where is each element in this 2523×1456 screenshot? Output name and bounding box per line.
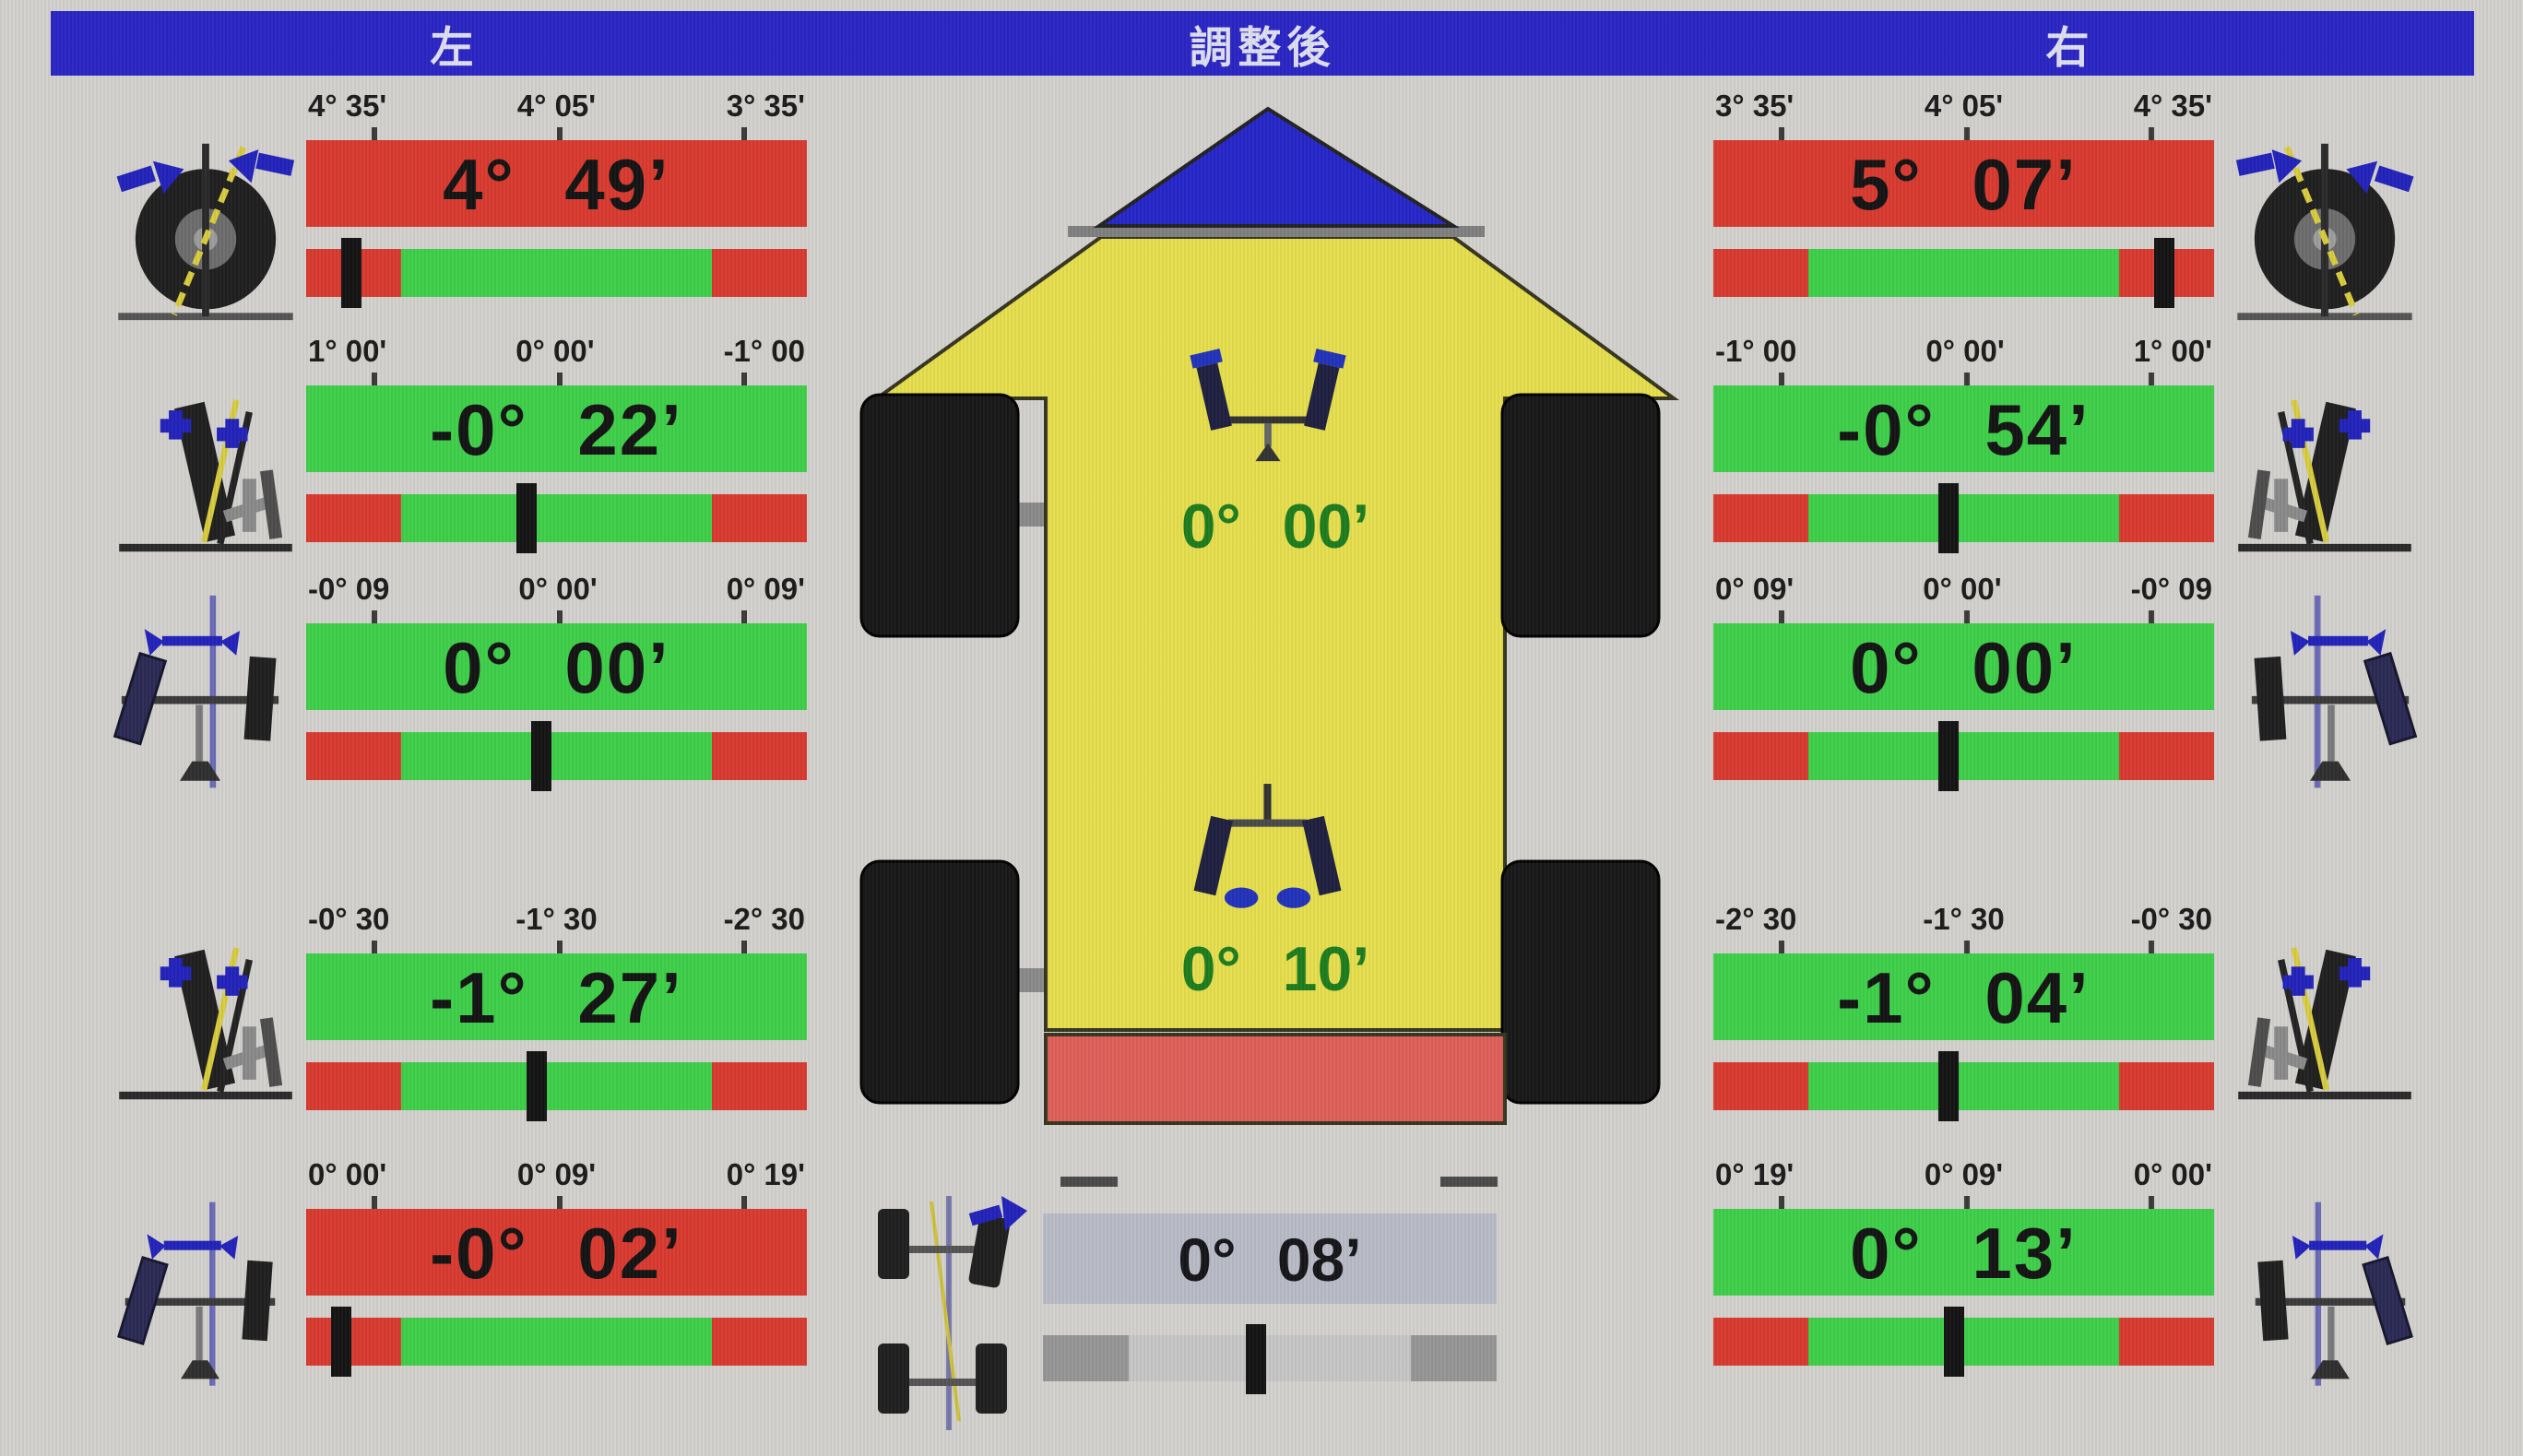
gauge-front-toe-left: -0° 090° 00'0° 09' 0° 00’ <box>306 572 807 780</box>
tolerance-scale <box>1713 1318 2214 1366</box>
gauge-rear-camber-right: -2° 30-1° 30-0° 30 -1° 04’ <box>1713 902 2214 1110</box>
toe-icon <box>2233 1199 2427 1392</box>
camber-icon <box>109 374 302 554</box>
gauge-rear-toe-left: 0° 00'0° 09'0° 19' -0° 02’ <box>306 1157 807 1366</box>
scale-ticks <box>1713 129 2214 140</box>
header-right-label: 右 <box>1666 12 2474 76</box>
thrust-range-dash <box>1060 1177 1118 1187</box>
rear-toe-icon <box>1173 782 1362 922</box>
scale-ticks <box>1713 1198 2214 1209</box>
gauge-caster-right: 3° 35'4° 05'4° 35' 5° 07’ <box>1713 89 2214 297</box>
camber-icon <box>109 922 302 1102</box>
gauge-rear-camber-left: -0° 30-1° 30-2° 30 -1° 27’ <box>306 902 807 1110</box>
measured-value: -1° 27’ <box>306 953 807 1040</box>
thrust-angle-icon <box>867 1188 1033 1438</box>
measured-value: -1° 04’ <box>1713 953 2214 1040</box>
scale-indicator <box>516 483 537 553</box>
range-labels: -2° 30-1° 30-0° 30 <box>1713 902 2214 942</box>
range-labels: 4° 35'4° 05'3° 35' <box>306 89 807 129</box>
scale-ticks <box>1713 374 2214 385</box>
thrust-angle-value: 0° 08’ <box>1043 1213 1497 1304</box>
scale-indicator <box>1246 1324 1266 1394</box>
scale-ticks <box>306 612 807 623</box>
tolerance-scale <box>306 494 807 542</box>
scale-ticks <box>1713 942 2214 953</box>
tolerance-scale <box>1713 249 2214 297</box>
gauge-front-camber-left: 1° 00'0° 00'-1° 00 -0° 22’ <box>306 334 807 542</box>
camber-icon <box>2228 922 2422 1102</box>
toe-icon <box>103 1199 297 1392</box>
range-labels: 1° 00'0° 00'-1° 00 <box>306 334 807 374</box>
measured-value: 0° 13’ <box>1713 1209 2214 1296</box>
gauge-front-camber-right: -1° 000° 00'1° 00' -0° 54’ <box>1713 334 2214 542</box>
scale-indicator <box>527 1051 547 1121</box>
header-center-label: 調整後 <box>859 12 1666 76</box>
scale-indicator <box>531 721 551 791</box>
range-labels: -1° 000° 00'1° 00' <box>1713 334 2214 374</box>
measured-value: -0° 54’ <box>1713 385 2214 472</box>
scale-ticks <box>306 129 807 140</box>
toe-icon <box>103 592 297 795</box>
rear-bumper <box>1046 1035 1505 1123</box>
tolerance-scale <box>1713 1062 2214 1110</box>
scale-ticks <box>306 374 807 385</box>
front-toe-icon <box>1171 339 1365 465</box>
scale-indicator <box>1938 721 1959 791</box>
tolerance-scale <box>306 249 807 297</box>
gauge-rear-toe-right: 0° 19'0° 09'0° 00' 0° 13’ <box>1713 1157 2214 1366</box>
car-roof <box>1099 109 1453 226</box>
range-labels: 0° 00'0° 09'0° 19' <box>306 1157 807 1198</box>
header-bar: 左 調整後 右 <box>51 11 2474 76</box>
gauge-caster-left: 4° 35'4° 05'3° 35' 4° 49’ <box>306 89 807 297</box>
camber-icon <box>2228 374 2422 554</box>
scale-ticks <box>306 1198 807 1209</box>
tolerance-scale <box>306 732 807 780</box>
measured-value: -0° 02’ <box>306 1209 807 1296</box>
caster-icon <box>109 136 302 326</box>
range-labels: 3° 35'4° 05'4° 35' <box>1713 89 2214 129</box>
gauge-front-toe-right: 0° 09'0° 00'-0° 09 0° 00’ <box>1713 572 2214 780</box>
tolerance-scale <box>1713 732 2214 780</box>
scale-indicator <box>1938 483 1959 553</box>
tolerance-scale <box>306 1062 807 1110</box>
scale-indicator <box>341 238 361 308</box>
header-left-label: 左 <box>51 12 859 76</box>
scale-ticks <box>1713 612 2214 623</box>
tolerance-scale <box>306 1318 807 1366</box>
alignment-screen: { "header": { "left": "左", "center": "調整… <box>0 0 2523 1456</box>
measured-value: 0° 00’ <box>306 623 807 710</box>
measured-value: 5° 07’ <box>1713 140 2214 227</box>
front-toe-total-value: 0° 00’ <box>1046 491 1505 562</box>
thrust-tolerance-scale <box>1043 1335 1497 1381</box>
measured-value: 0° 00’ <box>1713 623 2214 710</box>
rear-toe-total-value: 0° 10’ <box>1046 933 1505 1005</box>
range-labels: 0° 19'0° 09'0° 00' <box>1713 1157 2214 1198</box>
range-labels: 0° 09'0° 00'-0° 09 <box>1713 572 2214 612</box>
scale-ticks <box>306 942 807 953</box>
range-labels: -0° 090° 00'0° 09' <box>306 572 807 612</box>
measured-value: -0° 22’ <box>306 385 807 472</box>
scale-indicator <box>1938 1051 1959 1121</box>
measured-value: 4° 49’ <box>306 140 807 227</box>
caster-icon <box>2228 136 2422 326</box>
scale-indicator <box>2154 238 2174 308</box>
scale-indicator <box>1944 1307 1964 1377</box>
range-labels: -0° 30-1° 30-2° 30 <box>306 902 807 942</box>
tolerance-scale <box>1713 494 2214 542</box>
thrust-range-dash <box>1440 1177 1498 1187</box>
scale-indicator <box>331 1307 351 1377</box>
toe-icon <box>2233 592 2427 795</box>
